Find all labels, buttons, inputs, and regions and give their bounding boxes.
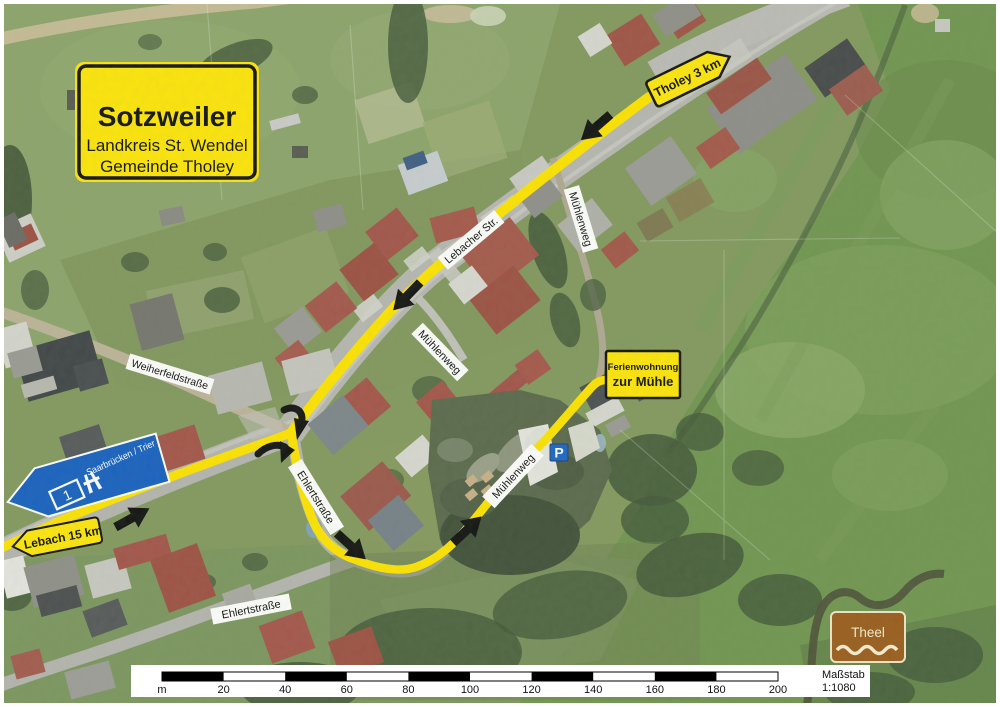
- svg-text:100: 100: [461, 684, 479, 696]
- svg-text:20: 20: [217, 684, 229, 696]
- svg-text:m: m: [157, 684, 166, 696]
- svg-text:180: 180: [707, 684, 725, 696]
- svg-text:1:1080: 1:1080: [822, 682, 856, 694]
- svg-text:80: 80: [402, 684, 414, 696]
- svg-text:160: 160: [646, 684, 664, 696]
- svg-text:Maßstab: Maßstab: [822, 669, 865, 681]
- svg-text:200: 200: [769, 684, 787, 696]
- svg-text:140: 140: [584, 684, 602, 696]
- svg-text:60: 60: [341, 684, 353, 696]
- svg-text:120: 120: [522, 684, 540, 696]
- svg-text:40: 40: [279, 684, 291, 696]
